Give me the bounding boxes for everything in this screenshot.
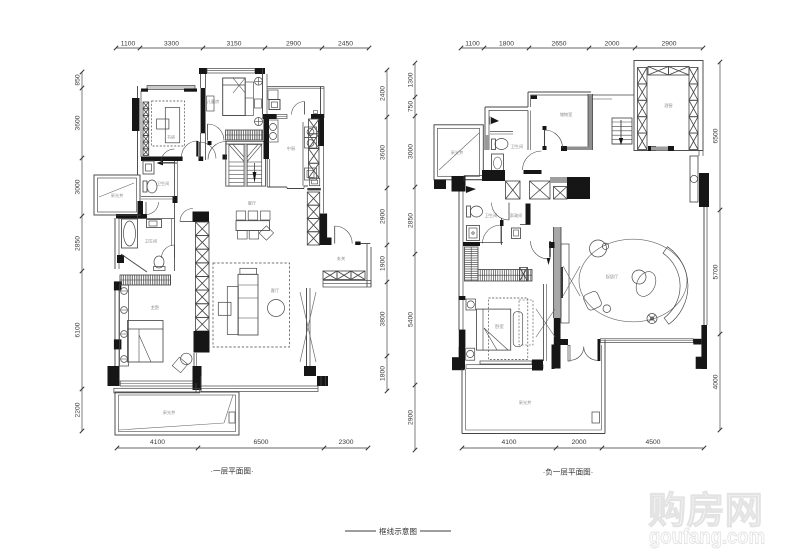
svg-text:·一层平面图·: ·一层平面图·: [210, 467, 253, 476]
svg-text:中厨: 中厨: [287, 145, 295, 152]
svg-text:4100: 4100: [150, 439, 165, 446]
svg-text:2450: 2450: [338, 41, 353, 48]
svg-text:2300: 2300: [339, 439, 354, 446]
svg-text:goufang.com: goufang.com: [649, 526, 765, 549]
svg-text:4100: 4100: [502, 439, 517, 446]
svg-text:采光井: 采光井: [111, 192, 124, 199]
svg-text:4000: 4000: [713, 374, 720, 389]
svg-text:5700: 5700: [713, 264, 720, 279]
svg-text:3800: 3800: [380, 311, 387, 326]
svg-text:2850: 2850: [408, 213, 415, 228]
svg-text:采光井: 采光井: [163, 409, 176, 416]
svg-text:2850: 2850: [75, 236, 82, 251]
svg-text:框线示意图: 框线示意图: [379, 526, 417, 536]
svg-text:书房: 书房: [167, 134, 175, 141]
svg-text:1100: 1100: [121, 41, 136, 48]
svg-text:3600: 3600: [75, 115, 82, 130]
svg-text:3600: 3600: [380, 145, 387, 160]
svg-text:2900: 2900: [380, 209, 387, 224]
svg-text:酒窖: 酒窖: [664, 102, 672, 109]
svg-text:750: 750: [408, 101, 415, 112]
svg-text:主卧: 主卧: [151, 304, 160, 311]
svg-text:家政间: 家政间: [510, 212, 523, 219]
svg-text:850: 850: [75, 74, 82, 85]
svg-text:卫生间: 卫生间: [157, 180, 170, 187]
svg-text:2400: 2400: [380, 86, 387, 101]
svg-text:2000: 2000: [605, 41, 620, 48]
svg-text:储物室: 储物室: [560, 111, 573, 118]
svg-text:采光井: 采光井: [451, 149, 464, 156]
svg-text:2200: 2200: [75, 402, 82, 417]
svg-text:采光井: 采光井: [519, 399, 532, 406]
svg-text:卫生间: 卫生间: [511, 143, 524, 150]
svg-text:1300: 1300: [408, 72, 415, 87]
svg-text:2900: 2900: [286, 41, 301, 48]
svg-text:1100: 1100: [465, 41, 480, 48]
svg-text:5400: 5400: [408, 312, 415, 327]
svg-text:3150: 3150: [227, 41, 242, 48]
svg-text:4500: 4500: [646, 439, 661, 446]
svg-text:·负一层平面图·: ·负一层平面图·: [543, 467, 594, 477]
svg-text:卫生间: 卫生间: [145, 238, 158, 245]
svg-text:6500: 6500: [254, 439, 269, 446]
svg-text:6500: 6500: [713, 128, 720, 143]
svg-text:6100: 6100: [75, 322, 82, 337]
svg-text:3000: 3000: [408, 144, 415, 159]
svg-text:卧室: 卧室: [495, 323, 504, 330]
svg-text:玄关: 玄关: [337, 255, 345, 262]
svg-text:儿童房: 儿童房: [207, 98, 220, 105]
svg-text:2650: 2650: [552, 41, 567, 48]
svg-text:2900: 2900: [408, 410, 415, 425]
svg-text:餐厅: 餐厅: [248, 200, 256, 207]
svg-text:1900: 1900: [380, 256, 387, 271]
svg-text:3300: 3300: [164, 41, 179, 48]
svg-text:客厅: 客厅: [271, 287, 279, 294]
svg-text:3000: 3000: [75, 179, 82, 194]
svg-text:2900: 2900: [662, 41, 677, 48]
svg-text:2000: 2000: [572, 439, 587, 446]
svg-text:1800: 1800: [380, 366, 387, 381]
svg-text:1800: 1800: [499, 41, 514, 48]
svg-text:卫生间: 卫生间: [485, 212, 498, 219]
